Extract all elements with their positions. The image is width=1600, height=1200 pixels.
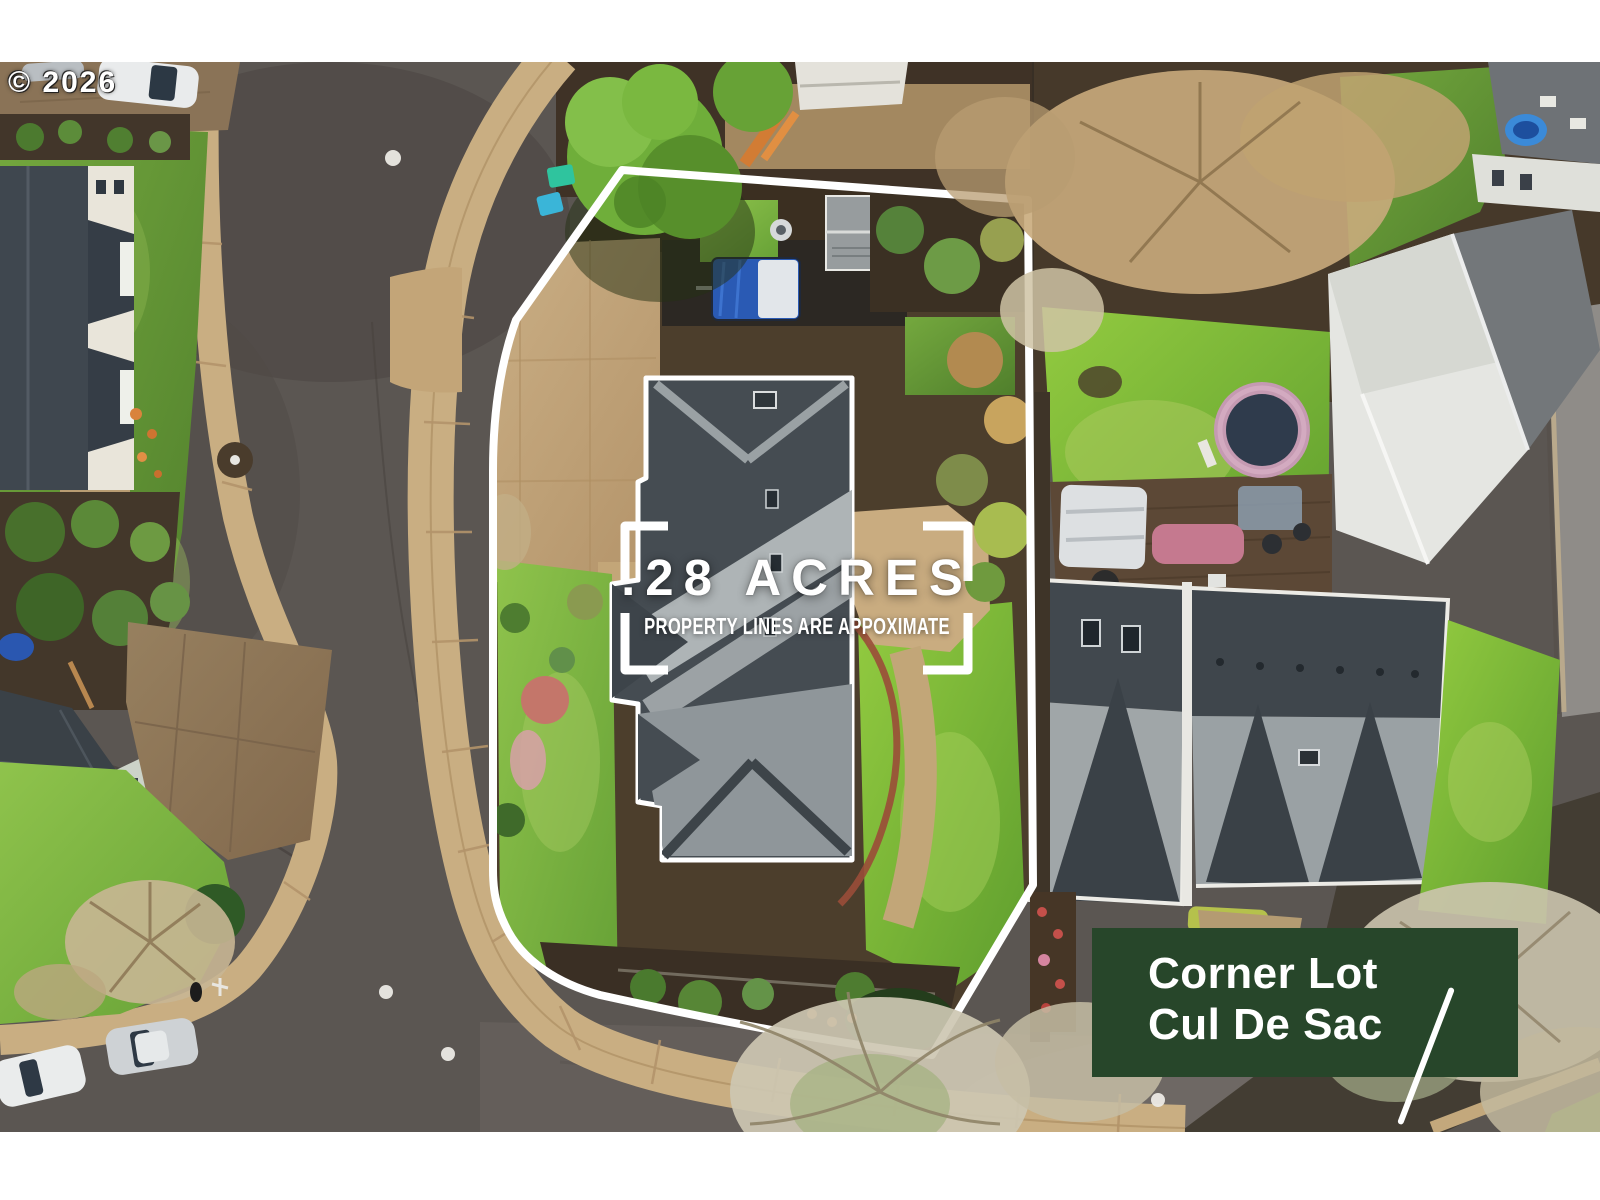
chimney bbox=[1299, 750, 1319, 765]
driveway-apron bbox=[390, 267, 462, 392]
acreage-value: .28 ACRES bbox=[447, 550, 1147, 606]
feature-banner-line1: Corner Lot bbox=[1148, 948, 1518, 999]
roof-chimney bbox=[754, 392, 776, 408]
pink-couch bbox=[1152, 524, 1244, 564]
property-lines-disclaimer: PROPERTY LINES ARE APPOXIMATE bbox=[545, 613, 1049, 640]
copyright-watermark: © 2026 bbox=[8, 66, 117, 100]
feature-banner-line2: Cul De Sac bbox=[1148, 999, 1518, 1050]
feature-banner: Corner Lot Cul De Sac bbox=[1092, 928, 1518, 1077]
real-estate-aerial-listing-image: © 2026 .28 ACRES PROPERTY LINES ARE APPO… bbox=[0, 0, 1600, 1200]
dog-on-sidewalk bbox=[190, 982, 202, 1002]
acreage-callout: .28 ACRES PROPERTY LINES ARE APPOXIMATE bbox=[447, 550, 1147, 640]
